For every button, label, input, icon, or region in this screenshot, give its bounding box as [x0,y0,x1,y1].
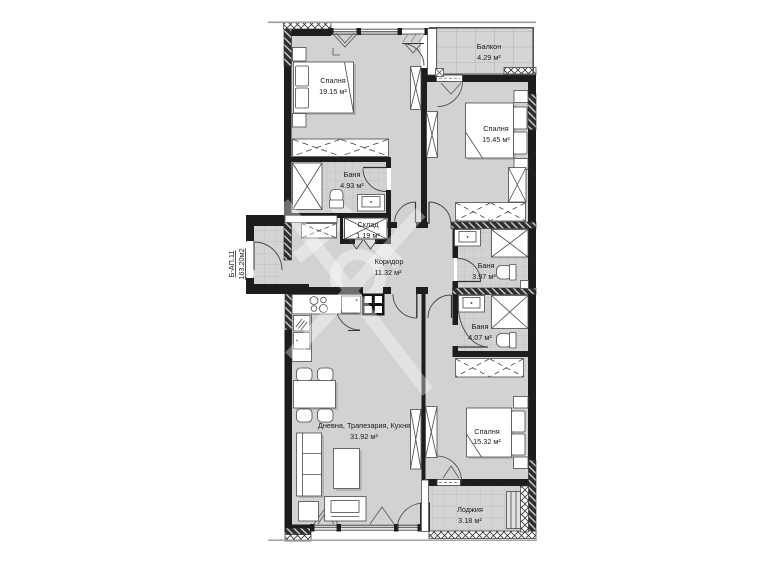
svg-text:15.45 м²: 15.45 м² [482,135,510,144]
svg-text:19.15 м²: 19.15 м² [319,87,347,96]
svg-text:4.07 м²: 4.07 м² [468,333,492,342]
svg-text:Б-АП.11: Б-АП.11 [227,251,236,278]
svg-text:4.93 м²: 4.93 м² [340,181,364,190]
svg-text:Балкон: Балкон [477,42,501,51]
svg-text:4.29 м²: 4.29 м² [477,53,501,62]
svg-text:1.19 м²: 1.19 м² [356,231,380,240]
svg-text:31.92 м²: 31.92 м² [350,432,378,441]
svg-text:163.20м2: 163.20м2 [237,248,246,279]
svg-text:3.97 м²: 3.97 м² [472,272,496,281]
svg-text:Баня: Баня [344,170,361,179]
svg-text:Баня: Баня [478,261,495,270]
svg-text:Коридор: Коридор [375,257,404,266]
svg-text:Дневна, Трапезария, Кухня: Дневна, Трапезария, Кухня [318,421,410,430]
svg-text:11.32 м²: 11.32 м² [374,268,402,277]
svg-text:Лоджия: Лоджия [457,505,483,514]
svg-text:Спалня: Спалня [320,76,346,85]
svg-text:Спалня: Спалня [483,124,509,133]
svg-text:Спалня: Спалня [474,427,500,436]
svg-text:Баня: Баня [472,322,489,331]
svg-text:15.32 м²: 15.32 м² [473,437,501,446]
svg-text:3.18 м²: 3.18 м² [458,516,482,525]
svg-text:Склад: Склад [357,220,379,229]
